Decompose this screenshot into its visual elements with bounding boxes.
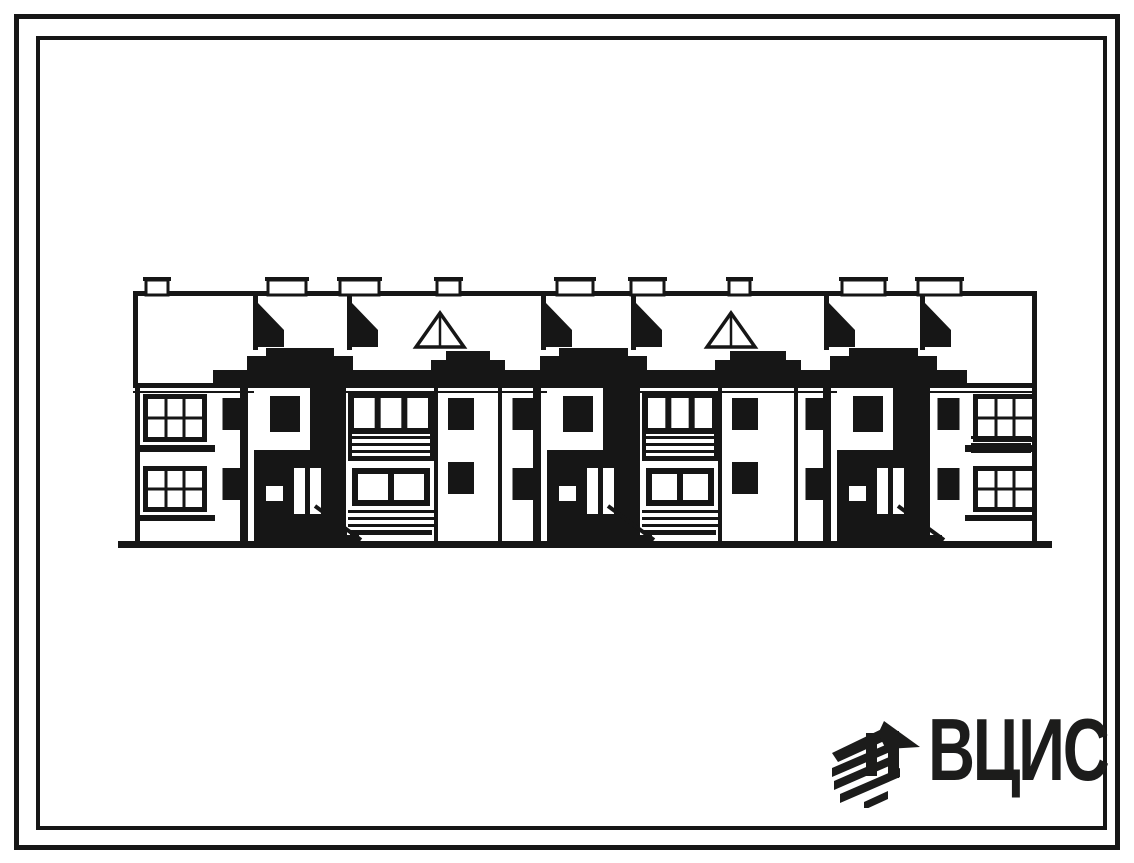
entry-towers: [240, 348, 944, 543]
vcis-logo-icon: [830, 716, 926, 808]
vcis-logo: ВЦИС: [830, 712, 1134, 808]
ground-line: [118, 541, 1052, 548]
roof-dormers: [253, 295, 951, 350]
roof-vents: [416, 313, 755, 347]
sheet: ВЦИС: [0, 0, 1134, 863]
vcis-logo-text: ВЦИС: [928, 706, 1108, 794]
